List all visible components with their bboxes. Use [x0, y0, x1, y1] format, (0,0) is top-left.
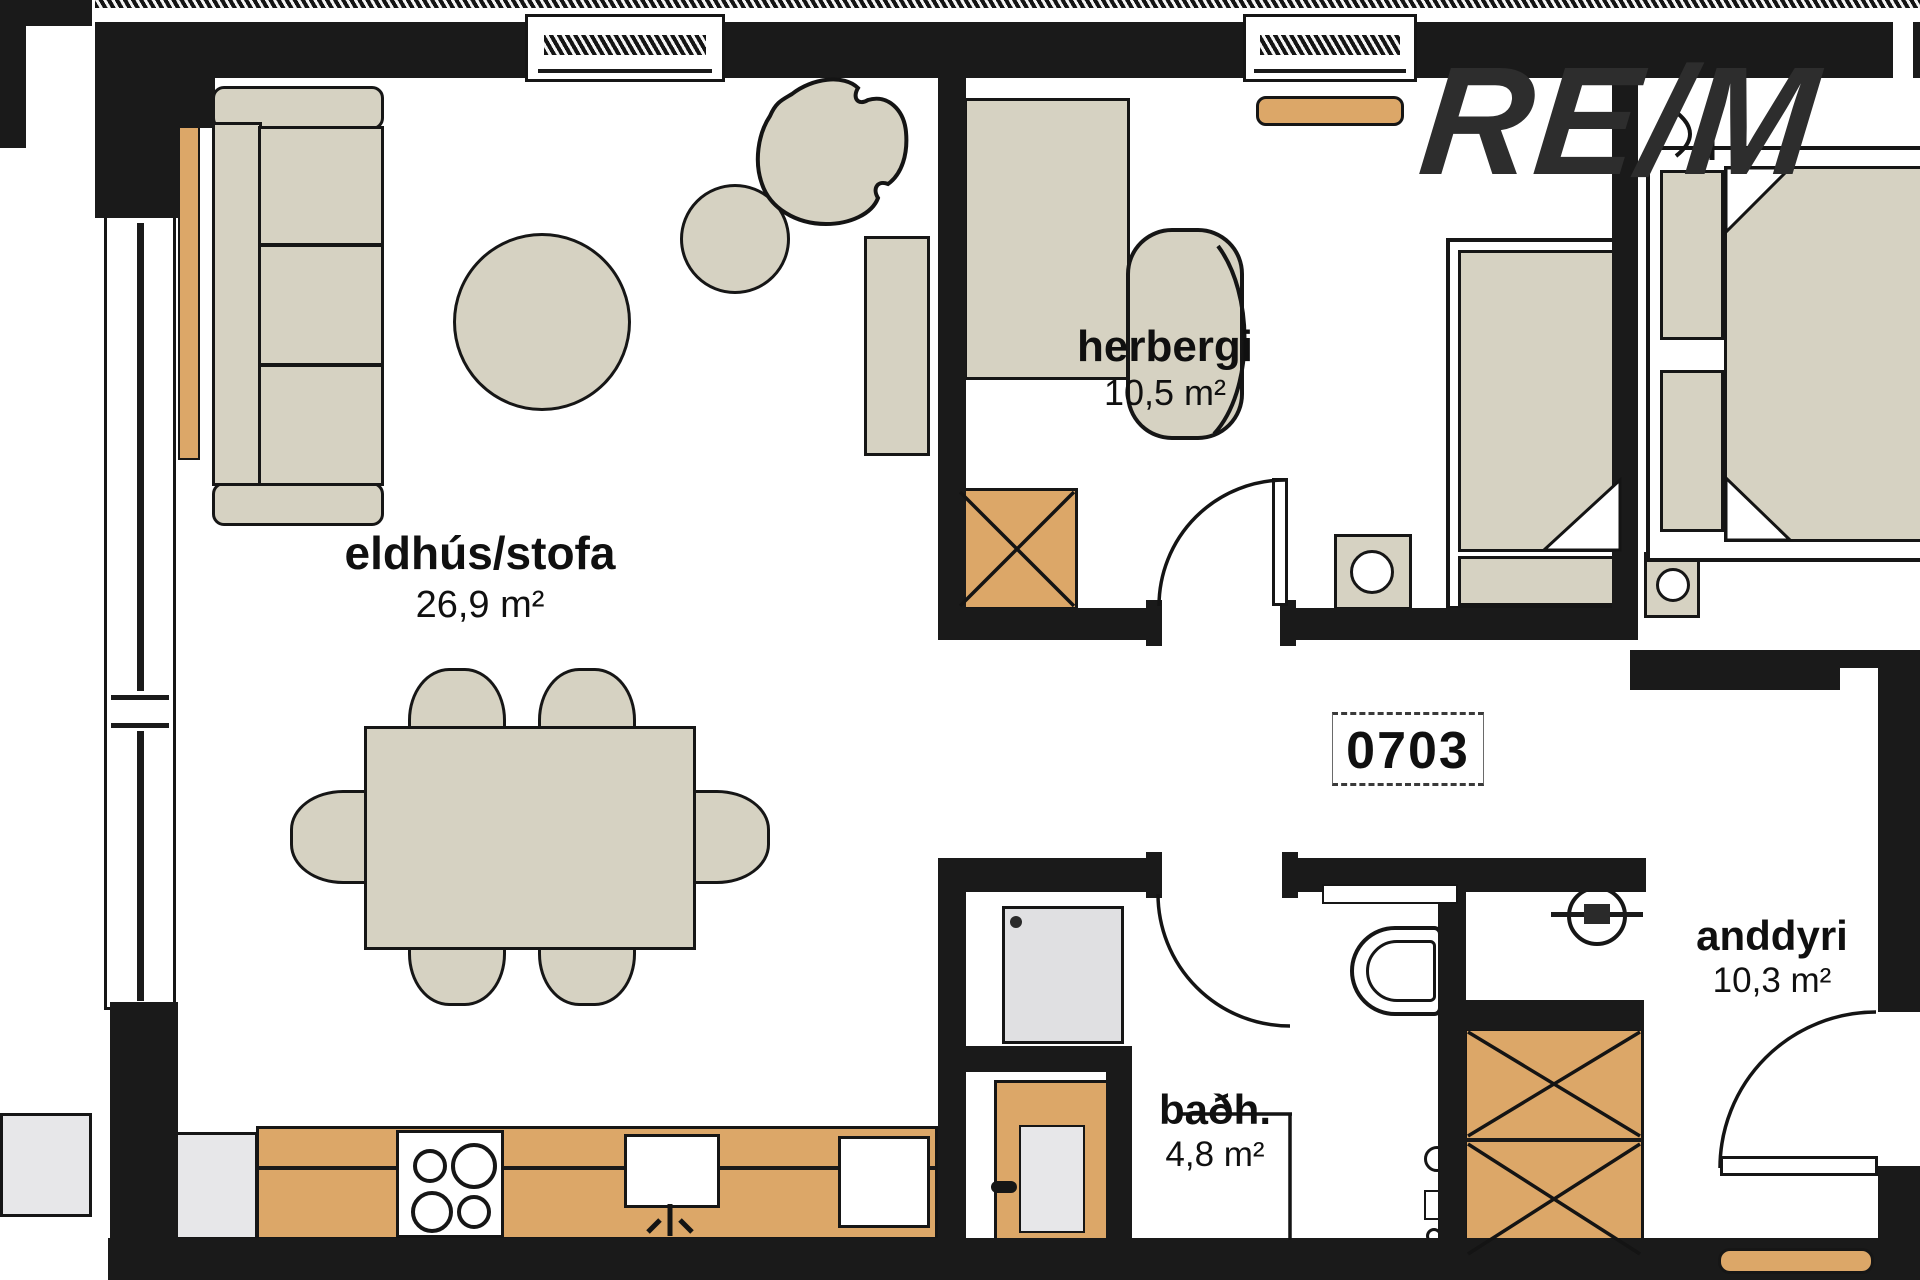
room-area: 10,5 m² [990, 373, 1340, 413]
left-wall-upper [95, 22, 180, 218]
side-table [680, 184, 790, 294]
burner [451, 1143, 497, 1189]
anddyri-shelf-wall [1438, 1000, 1644, 1030]
exterior-face-line [95, 0, 1920, 8]
left-window-glazing [104, 212, 176, 1010]
towel-shelf [1322, 884, 1458, 904]
floor-plan: eldhús/stofa 26,9 m² herbergi 10,5 m² ba… [0, 0, 1920, 1280]
window-frame-line [538, 69, 712, 73]
window-living-top [525, 14, 725, 82]
unit-number-box: 0703 [1332, 712, 1484, 786]
window-sill-bar [544, 35, 706, 55]
room-area: 4,8 m² [1120, 1135, 1310, 1174]
room-area: 26,9 m² [300, 584, 660, 627]
entry-door-leaf [1720, 1156, 1878, 1176]
washer-divider-wall [938, 1046, 1132, 1072]
entry-door-arc [1720, 1012, 1876, 1168]
room-label-living: eldhús/stofa 26,9 m² [300, 528, 660, 626]
sofa-armrest [212, 482, 384, 526]
room-label-bath: baðh. 4,8 m² [1120, 1086, 1310, 1174]
closet-door [994, 1080, 1110, 1260]
bath-door-arc [1158, 894, 1290, 1026]
room-label-herbergi: herbergi 10,5 m² [990, 322, 1340, 414]
door-handle [991, 1181, 1017, 1193]
herbergi-bottom-wall-right [1286, 608, 1632, 640]
dining-table [364, 726, 696, 950]
wall-gap-top-right [1893, 14, 1913, 80]
herbergi-door-leaf [1272, 478, 1288, 606]
bath-top-wall-left [938, 858, 1158, 892]
window-sill-herbergi [1256, 96, 1404, 126]
balcony-planter-outside [0, 1113, 92, 1217]
room-name: anddyri [1652, 912, 1892, 959]
burner [411, 1191, 453, 1233]
bottom-wall [108, 1238, 1882, 1280]
living-herbergi-wall [938, 78, 966, 640]
hinge-post [1280, 600, 1296, 646]
herbergi-door-arc [1159, 480, 1285, 606]
room-label-anddyri: anddyri 10,3 m² [1652, 912, 1892, 1000]
sofa-backrest [212, 122, 262, 486]
kitchen-counter [256, 1126, 938, 1240]
closet-door-panel [1019, 1125, 1085, 1233]
right-wall-lower [1878, 1166, 1920, 1280]
hinge-post [1146, 600, 1162, 646]
glazing-line [137, 731, 144, 1001]
balcony-wall-horizontal [26, 0, 92, 26]
hinge-post [1146, 852, 1162, 898]
entry-threshold [1718, 1248, 1874, 1274]
room-name: baðh. [1120, 1086, 1310, 1133]
burner [457, 1195, 491, 1229]
kitchen-sink [624, 1134, 720, 1208]
wardrobe-anddyri [1464, 1028, 1644, 1258]
single-bed-foot [1458, 556, 1622, 606]
glazing-divider [111, 695, 169, 700]
sofa-cushion [258, 126, 384, 246]
stove [396, 1130, 504, 1238]
nightstand-lamp [1656, 568, 1690, 602]
glazing-divider [111, 723, 169, 728]
wardrobe-herbergi [956, 488, 1078, 610]
bed-headboard-cushion [1660, 370, 1724, 532]
sofa-cushion [258, 244, 384, 366]
window-frame-line [1254, 69, 1406, 73]
single-bed-mattress [1458, 250, 1622, 552]
herbergi-bottom-wall-left [938, 608, 1156, 640]
ceiling-light-center [1584, 904, 1610, 924]
washing-machine [1002, 906, 1124, 1044]
counter-edge-line [259, 1166, 935, 1170]
radiator [178, 108, 200, 460]
sofa-cushion [258, 364, 384, 486]
balcony-wall-vertical [0, 0, 26, 148]
room-name: herbergi [990, 322, 1340, 371]
bath-anddyri-wall [1438, 858, 1466, 1240]
tv-sideboard [864, 236, 930, 456]
lounge-chair [758, 79, 907, 224]
nightstand-lamp [1350, 550, 1394, 594]
window-herbergi-top [1243, 14, 1417, 82]
window-sill-bar [1260, 35, 1400, 55]
kitchen-appliance-left [168, 1132, 258, 1240]
kitchen-appliance-right [838, 1136, 930, 1228]
toilet-seat [1366, 940, 1436, 1002]
room-area: 10,3 m² [1652, 961, 1892, 1000]
wardrobe-divider [1466, 1138, 1642, 1142]
realtor-watermark: RE/M [1414, 44, 1827, 198]
bedroom-wall-notch [1840, 668, 1878, 690]
room-name: eldhús/stofa [300, 528, 660, 580]
burner [413, 1149, 447, 1183]
round-rug [453, 233, 631, 411]
double-bed-mattress [1724, 166, 1920, 542]
glazing-line [137, 223, 144, 691]
hinge-post [1282, 852, 1298, 898]
